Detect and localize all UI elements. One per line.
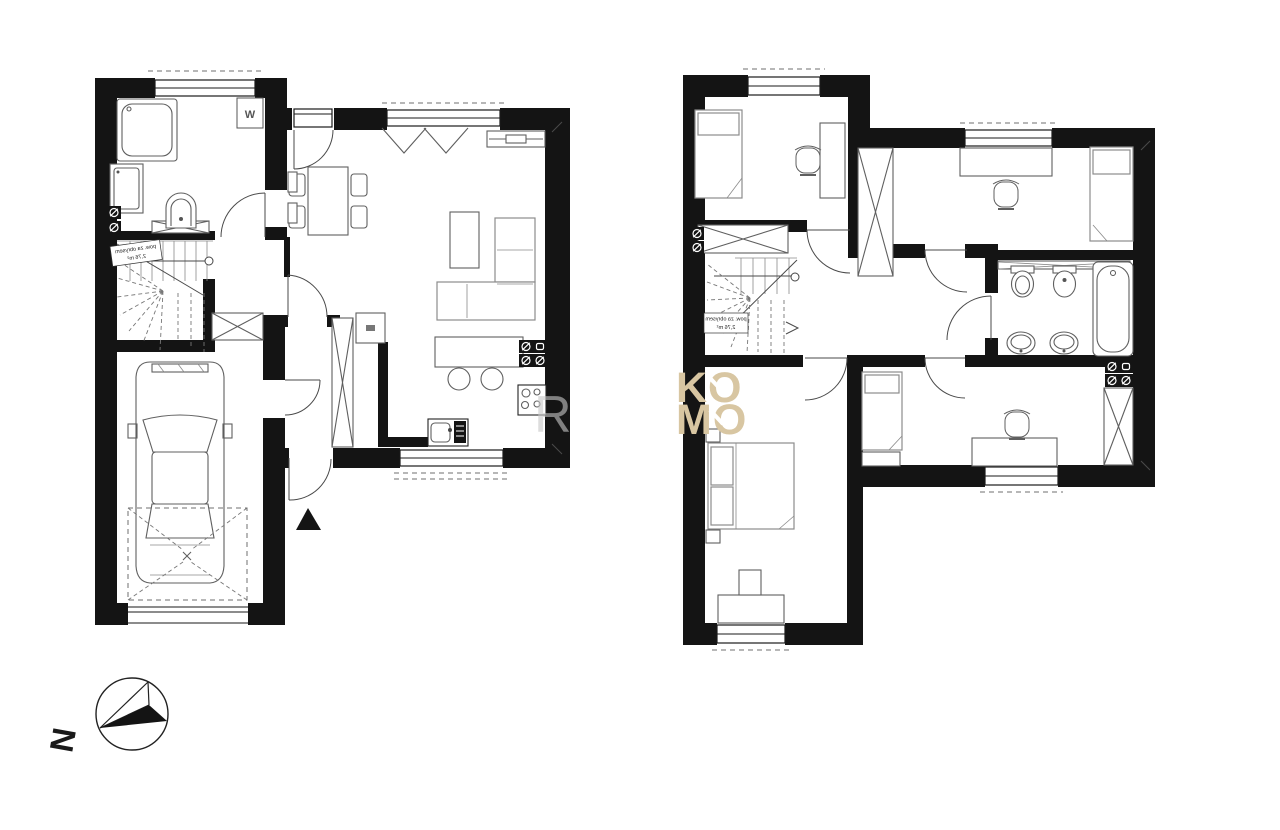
office-chair-icon <box>1004 410 1030 439</box>
entry-door <box>289 458 331 500</box>
bed-icon <box>1090 147 1133 241</box>
svg-text:2,76 m²: 2,76 m² <box>717 325 736 331</box>
kitchen-window <box>394 450 509 479</box>
chair-icon <box>351 206 367 228</box>
meter-icon <box>690 241 704 254</box>
meter-icon <box>690 227 704 240</box>
meter-icon <box>1105 374 1119 387</box>
dining-table <box>289 167 367 235</box>
bed-icon <box>695 110 742 198</box>
ground-floor-plan: W <box>95 71 570 625</box>
meter-icon <box>519 354 533 367</box>
stool-icon <box>448 368 470 390</box>
office-chair-icon <box>993 180 1019 209</box>
bedroom3-door <box>925 358 965 398</box>
tv-stand-icon <box>739 570 761 595</box>
utility-door <box>221 193 265 237</box>
compass-icon: N <box>43 678 168 755</box>
svg-text:MO: MO <box>676 396 747 444</box>
landing-wardrobe <box>698 225 788 253</box>
bedroom1-door <box>807 230 850 273</box>
bathroom-door <box>947 296 991 340</box>
stairs-direction-arrow <box>786 322 798 334</box>
parking-zone <box>128 508 247 600</box>
nightstand <box>706 530 720 543</box>
compass-north-label: N <box>43 725 84 755</box>
desk-icon <box>960 148 1052 176</box>
shower-icon <box>117 99 177 161</box>
sink-icon <box>1050 332 1078 354</box>
meter-icon <box>519 340 533 353</box>
partial-watermark-letter: R <box>534 386 572 444</box>
nightstand <box>862 452 900 466</box>
master-bedroom-door <box>805 358 847 400</box>
svg-text:pow. za obrysem: pow. za obrysem <box>705 317 747 323</box>
kitchen-island <box>435 337 523 390</box>
radiator-icon <box>487 131 545 147</box>
boiler-label: W <box>245 109 256 121</box>
living-room-window <box>382 103 505 126</box>
bidet-icon <box>1053 266 1076 297</box>
staircase-upper: pow. za obrysem 2,76 m² <box>704 258 799 355</box>
upper-floor-plan: pow. za obrysem 2,76 m² <box>683 69 1155 650</box>
meter-icon <box>533 354 547 367</box>
utility-window <box>148 71 262 96</box>
floor-plan-page: W <box>0 0 1280 830</box>
desk-icon <box>972 438 1057 466</box>
double-bed-icon <box>706 429 794 543</box>
toilet-icon <box>1011 266 1034 297</box>
bathtub-icon <box>1093 262 1133 356</box>
upper-floor-walls <box>683 75 1155 645</box>
bedroom2-door <box>925 250 967 292</box>
dresser-icon <box>718 595 784 623</box>
curtains-icon <box>382 128 468 153</box>
staircase-ground: pow. za obrysem 2,76 m² <box>110 240 213 352</box>
chair-icon <box>351 174 367 196</box>
kitchen-counter <box>378 342 428 447</box>
wardrobe-icon <box>1104 388 1133 465</box>
washing-machine-icon <box>110 164 143 213</box>
wall-niche <box>288 172 297 192</box>
komo-watermark: KO MO <box>676 364 747 444</box>
office-chair-icon <box>795 146 821 175</box>
front-door-panel <box>294 109 333 169</box>
hall-wardrobe <box>332 318 353 447</box>
hall-cabinet <box>356 313 385 343</box>
wall-niche <box>288 203 297 223</box>
bed-icon <box>862 372 902 466</box>
living-hall-door <box>288 275 327 317</box>
garage-hall-door <box>285 380 320 415</box>
meter-icon <box>107 206 121 219</box>
desk-icon <box>820 123 845 198</box>
car-icon <box>128 362 232 583</box>
stairs-note: pow. za obrysem 2,76 m² <box>704 313 748 333</box>
wardrobe-icon <box>858 148 893 276</box>
bedroom2-window <box>960 123 1057 146</box>
sink-icon <box>1007 332 1035 354</box>
meter-icon <box>107 221 121 234</box>
bedroom1-window <box>743 69 825 95</box>
boiler-box: W <box>237 98 263 128</box>
garage-door <box>128 603 248 625</box>
stair-wardrobe <box>212 313 263 340</box>
entrance-marker <box>296 508 321 530</box>
meter-icon <box>533 340 547 353</box>
bedroom3-window <box>980 467 1063 492</box>
meter-icon <box>1119 360 1133 373</box>
floor-plan-drawing: W <box>0 0 1280 830</box>
coffee-table <box>450 212 479 268</box>
stool-icon <box>481 368 503 390</box>
bathroom <box>998 261 1133 356</box>
stairs-note: pow. za obrysem 2,76 m² <box>110 240 162 267</box>
meter-icon <box>1105 360 1119 373</box>
kitchen-sink-icon <box>428 419 468 446</box>
toilet-icon <box>152 193 209 233</box>
master-bedroom-window <box>712 625 790 650</box>
meter-icon <box>1119 374 1133 387</box>
